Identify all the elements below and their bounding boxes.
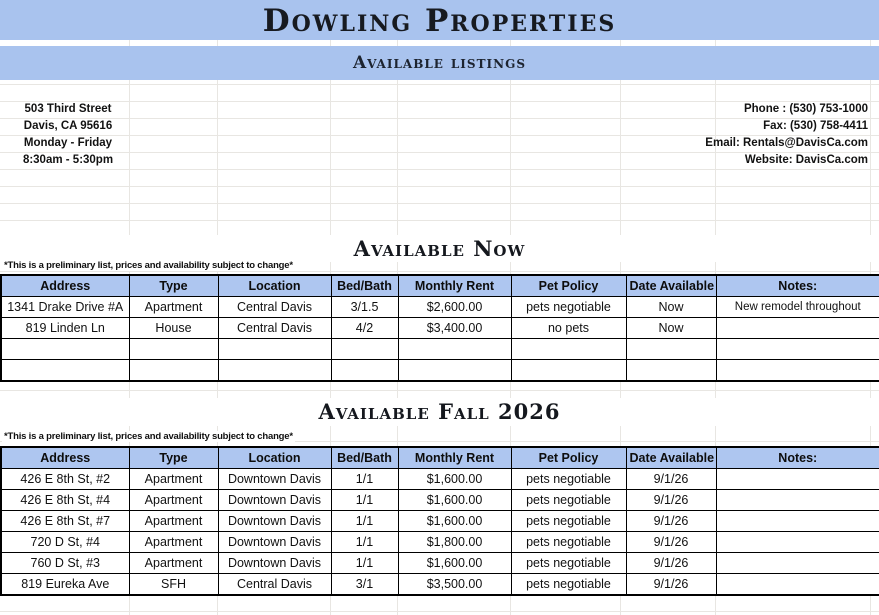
cell-address[interactable]: 1341 Drake Drive #A	[1, 297, 129, 318]
cell-address[interactable]: 819 Linden Ln	[1, 318, 129, 339]
cell-address[interactable]: 426 E 8th St, #2	[1, 469, 129, 490]
contact-website: Website: DavisCa.com	[548, 152, 868, 169]
contact-hours: 8:30am - 5:30pm	[0, 152, 136, 169]
cell-type[interactable]: Apartment	[129, 297, 218, 318]
cell-address[interactable]: 426 E 8th St, #7	[1, 511, 129, 532]
contact-days: Monday - Friday	[0, 135, 136, 152]
cell-rent[interactable]	[398, 339, 511, 360]
column-header-address: Address	[1, 447, 129, 469]
section-title-available-fall: Available Fall 2026	[0, 398, 879, 426]
cell-rent[interactable]: $3,400.00	[398, 318, 511, 339]
cell-rent[interactable]: $1,600.00	[398, 469, 511, 490]
cell-rent[interactable]	[398, 360, 511, 382]
table-row: 426 E 8th St, #4 Apartment Downtown Davi…	[1, 490, 879, 511]
cell-petpolicy[interactable]: pets negotiable	[511, 511, 626, 532]
cell-petpolicy[interactable]: pets negotiable	[511, 532, 626, 553]
cell-notes[interactable]	[716, 532, 879, 553]
column-header-notes: Notes:	[716, 447, 879, 469]
column-header-bedbath: Bed/Bath	[331, 275, 398, 297]
column-header-bedbath: Bed/Bath	[331, 447, 398, 469]
cell-type[interactable]: Apartment	[129, 490, 218, 511]
contact-phone: Phone : (530) 753-1000	[548, 101, 868, 118]
cell-type[interactable]: Apartment	[129, 469, 218, 490]
cell-dateavailable[interactable]: 9/1/26	[626, 469, 716, 490]
cell-notes[interactable]: New remodel throughout	[716, 297, 879, 318]
cell-dateavailable[interactable]: 9/1/26	[626, 574, 716, 596]
cell-address[interactable]: 426 E 8th St, #4	[1, 490, 129, 511]
cell-bedbath[interactable]: 3/1	[331, 574, 398, 596]
column-header-location: Location	[218, 275, 331, 297]
column-header-notes: Notes:	[716, 275, 879, 297]
cell-type[interactable]	[129, 339, 218, 360]
cell-address[interactable]: 760 D St, #3	[1, 553, 129, 574]
column-header-rent: Monthly Rent	[398, 447, 511, 469]
contact-fax: Fax: (530) 758-4411	[548, 118, 868, 135]
cell-notes[interactable]	[716, 318, 879, 339]
cell-notes[interactable]	[716, 574, 879, 596]
cell-petpolicy[interactable]: no pets	[511, 318, 626, 339]
cell-type[interactable]	[129, 360, 218, 382]
cell-type[interactable]: Apartment	[129, 532, 218, 553]
available-now-table: Address Type Location Bed/Bath Monthly R…	[0, 274, 879, 382]
column-header-type: Type	[129, 447, 218, 469]
cell-rent[interactable]: $1,600.00	[398, 511, 511, 532]
cell-location[interactable]: Downtown Davis	[218, 511, 331, 532]
cell-bedbath[interactable]: 1/1	[331, 469, 398, 490]
table-row: 426 E 8th St, #2 Apartment Downtown Davi…	[1, 469, 879, 490]
column-header-rent: Monthly Rent	[398, 275, 511, 297]
column-header-location: Location	[218, 447, 331, 469]
cell-dateavailable[interactable]: Now	[626, 297, 716, 318]
table-header-row: Address Type Location Bed/Bath Monthly R…	[1, 275, 879, 297]
table-row-empty	[1, 339, 879, 360]
table-row-empty	[1, 360, 879, 382]
title-banner: Dowling Properties	[0, 0, 879, 40]
cell-notes[interactable]	[716, 553, 879, 574]
preliminary-note: *This is a preliminary list, prices and …	[2, 431, 295, 442]
cell-bedbath[interactable]	[331, 360, 398, 382]
column-header-dateavailable: Date Available	[626, 275, 716, 297]
cell-dateavailable[interactable]: 9/1/26	[626, 532, 716, 553]
cell-bedbath[interactable]: 3/1.5	[331, 297, 398, 318]
cell-petpolicy[interactable]: pets negotiable	[511, 469, 626, 490]
cell-address[interactable]	[1, 360, 129, 382]
contact-city: Davis, CA 95616	[0, 118, 136, 135]
contact-comm-block: Phone : (530) 753-1000 Fax: (530) 758-44…	[548, 101, 879, 169]
cell-bedbath[interactable]: 1/1	[331, 553, 398, 574]
table-header-row: Address Type Location Bed/Bath Monthly R…	[1, 447, 879, 469]
cell-dateavailable[interactable]: 9/1/26	[626, 490, 716, 511]
cell-address[interactable]	[1, 339, 129, 360]
cell-location[interactable]	[218, 360, 331, 382]
cell-notes[interactable]	[716, 511, 879, 532]
cell-dateavailable[interactable]: 9/1/26	[626, 553, 716, 574]
cell-type[interactable]: House	[129, 318, 218, 339]
cell-address[interactable]: 819 Eureka Ave	[1, 574, 129, 596]
cell-petpolicy[interactable]: pets negotiable	[511, 490, 626, 511]
table-row: 426 E 8th St, #7 Apartment Downtown Davi…	[1, 511, 879, 532]
cell-location[interactable]: Central Davis	[218, 574, 331, 596]
section-title-available-now: Available Now	[0, 235, 879, 262]
subtitle-banner: Available listings	[0, 46, 879, 80]
cell-dateavailable[interactable]: 9/1/26	[626, 511, 716, 532]
cell-rent[interactable]: $2,600.00	[398, 297, 511, 318]
cell-bedbath[interactable]: 4/2	[331, 318, 398, 339]
cell-petpolicy[interactable]: pets negotiable	[511, 553, 626, 574]
cell-notes[interactable]	[716, 490, 879, 511]
table-row: 819 Linden Ln House Central Davis 4/2 $3…	[1, 318, 879, 339]
cell-rent[interactable]: $3,500.00	[398, 574, 511, 596]
cell-location[interactable]: Downtown Davis	[218, 532, 331, 553]
cell-location[interactable]: Downtown Davis	[218, 553, 331, 574]
column-header-type: Type	[129, 275, 218, 297]
cell-notes[interactable]	[716, 469, 879, 490]
cell-rent[interactable]: $1,800.00	[398, 532, 511, 553]
cell-type[interactable]: Apartment	[129, 511, 218, 532]
cell-petpolicy[interactable]: pets negotiable	[511, 574, 626, 596]
cell-address[interactable]: 720 D St, #4	[1, 532, 129, 553]
cell-dateavailable[interactable]	[626, 339, 716, 360]
column-header-dateavailable: Date Available	[626, 447, 716, 469]
contact-email: Email: Rentals@DavisCa.com	[548, 135, 868, 152]
cell-dateavailable[interactable]	[626, 360, 716, 382]
contact-street: 503 Third Street	[0, 101, 136, 118]
cell-location[interactable]: Downtown Davis	[218, 490, 331, 511]
preliminary-note: *This is a preliminary list, prices and …	[2, 260, 295, 271]
table-row: 1341 Drake Drive #A Apartment Central Da…	[1, 297, 879, 318]
table-row: 819 Eureka Ave SFH Central Davis 3/1 $3,…	[1, 574, 879, 596]
cell-location[interactable]: Central Davis	[218, 297, 331, 318]
column-header-petpolicy: Pet Policy	[511, 447, 626, 469]
column-header-petpolicy: Pet Policy	[511, 275, 626, 297]
company-title: Dowling Properties	[263, 3, 617, 39]
table-row: 760 D St, #3 Apartment Downtown Davis 1/…	[1, 553, 879, 574]
cell-petpolicy[interactable]	[511, 360, 626, 382]
cell-bedbath[interactable]	[331, 339, 398, 360]
cell-location[interactable]: Downtown Davis	[218, 469, 331, 490]
cell-petpolicy[interactable]	[511, 339, 626, 360]
table-row: 720 D St, #4 Apartment Downtown Davis 1/…	[1, 532, 879, 553]
available-fall-table: Address Type Location Bed/Bath Monthly R…	[0, 446, 879, 596]
cell-notes[interactable]	[716, 360, 879, 382]
contact-address-block: 503 Third Street Davis, CA 95616 Monday …	[0, 101, 136, 169]
cell-type[interactable]: Apartment	[129, 553, 218, 574]
cell-bedbath[interactable]: 1/1	[331, 532, 398, 553]
cell-location[interactable]: Central Davis	[218, 318, 331, 339]
page-subtitle: Available listings	[353, 53, 526, 73]
cell-bedbath[interactable]: 1/1	[331, 511, 398, 532]
cell-rent[interactable]: $1,600.00	[398, 490, 511, 511]
column-header-address: Address	[1, 275, 129, 297]
cell-bedbath[interactable]: 1/1	[331, 490, 398, 511]
cell-dateavailable[interactable]: Now	[626, 318, 716, 339]
cell-rent[interactable]: $1,600.00	[398, 553, 511, 574]
cell-type[interactable]: SFH	[129, 574, 218, 596]
cell-location[interactable]	[218, 339, 331, 360]
cell-petpolicy[interactable]: pets negotiable	[511, 297, 626, 318]
cell-notes[interactable]	[716, 339, 879, 360]
